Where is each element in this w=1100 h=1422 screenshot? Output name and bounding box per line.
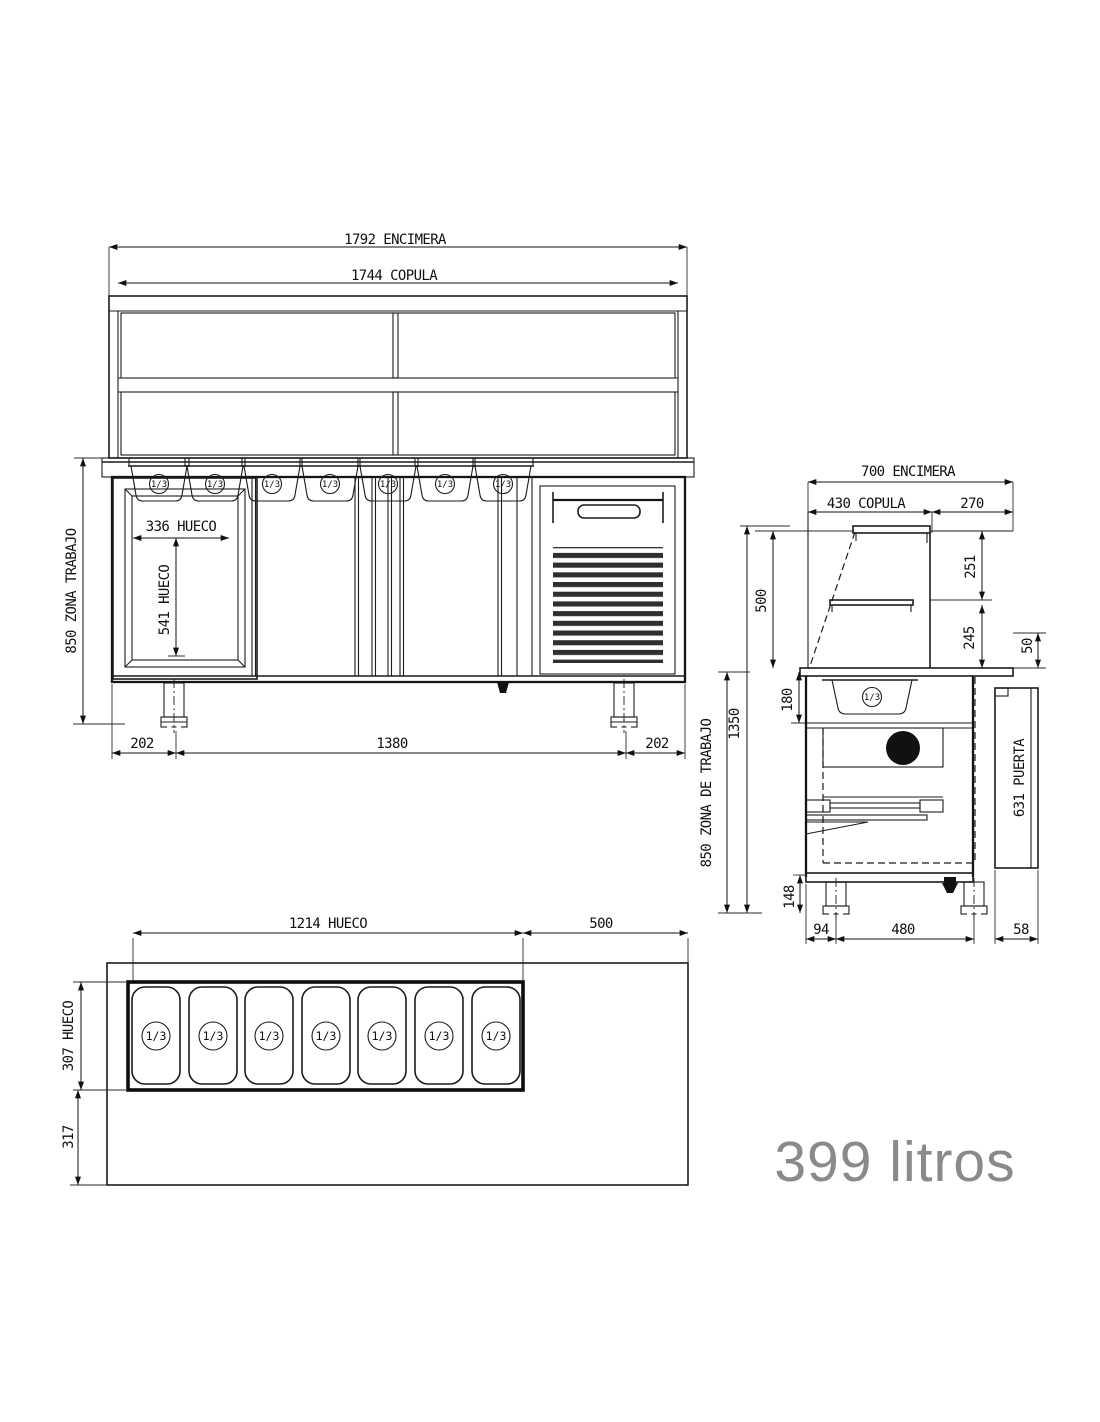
plan-dim-hueco-depth: 307 HUECO xyxy=(61,1001,77,1072)
front-dim-foot-right: 202 xyxy=(645,736,669,752)
front-dim-hueco-width: 336 HUECO xyxy=(146,519,217,535)
side-dim-copula-height: 500 xyxy=(754,589,770,613)
front-dim-hueco-height: 541 HUECO xyxy=(157,565,173,636)
side-dim-lip: 50 xyxy=(1020,638,1036,654)
front-dim-work-zone: 850 ZONA TRABAJO xyxy=(64,528,80,653)
side-dim-door: 631 PUERTA xyxy=(1012,738,1028,817)
side-dim-upper-gap: 251 xyxy=(963,555,979,579)
side-dim-encimera-depth: 700 ENCIMERA xyxy=(861,464,956,480)
side-dim-copula-depth: 430 COPULA xyxy=(827,496,906,512)
front-dim-encimera-width: 1792 ENCIMERA xyxy=(344,232,447,248)
background xyxy=(0,0,1100,1422)
side-dim-leg-height: 148 xyxy=(782,885,798,909)
evaporator-fan xyxy=(886,731,920,765)
side-dim-work-zone: 850 ZONA DE TRABAJO xyxy=(699,718,715,867)
saladette-technical-drawing: 1/3 1/3 1792 ENCIMERA xyxy=(0,0,1100,1422)
side-dim-total-height: 1350 xyxy=(727,708,743,739)
plan-dim-front-depth: 317 xyxy=(61,1125,77,1149)
compressor-vent-louvers xyxy=(553,547,663,663)
side-dim-leg-span: 480 xyxy=(891,922,915,938)
front-dim-foot-left: 202 xyxy=(130,736,154,752)
capacity-label: 399 litros xyxy=(774,1130,1015,1194)
front-dim-copula-width: 1744 COPULA xyxy=(351,268,438,284)
side-dim-pan-zone: 180 xyxy=(780,688,796,712)
plan-dim-rear-depth: 500 xyxy=(589,916,613,932)
side-dim-door-offset: 58 xyxy=(1013,922,1029,938)
plan-dim-hueco-width: 1214 HUECO xyxy=(289,916,367,932)
technical-drawing-page: 1/3 1/3 1792 ENCIMERA xyxy=(0,0,1100,1422)
side-dim-rear-flat: 270 xyxy=(960,496,984,512)
front-dim-leg-span: 1380 xyxy=(376,736,407,752)
side-dim-lower-gap: 245 xyxy=(962,626,978,650)
pan-size-label: 1/3 xyxy=(864,693,880,703)
side-dim-front-offset: 94 xyxy=(813,922,829,938)
